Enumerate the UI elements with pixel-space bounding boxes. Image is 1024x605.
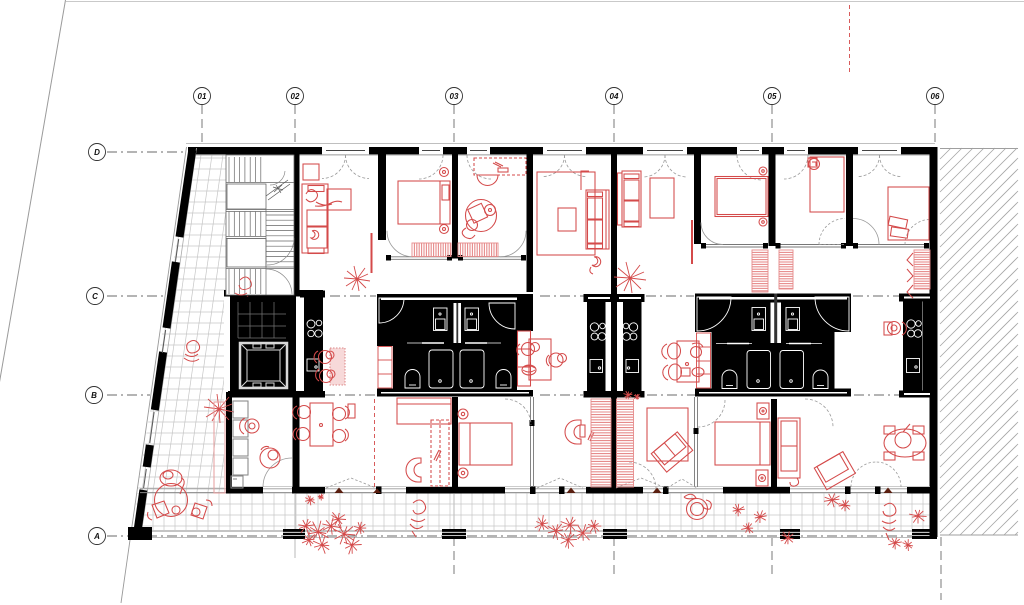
svg-text:04: 04: [610, 92, 619, 101]
svg-text:05: 05: [768, 92, 777, 101]
svg-text:D: D: [94, 148, 100, 157]
svg-text:02: 02: [291, 92, 300, 101]
svg-text:06: 06: [931, 92, 940, 101]
svg-text:C: C: [92, 292, 98, 301]
svg-text:03: 03: [450, 92, 459, 101]
svg-text:B: B: [91, 391, 97, 400]
svg-text:01: 01: [198, 92, 207, 101]
svg-text:A: A: [93, 532, 100, 541]
